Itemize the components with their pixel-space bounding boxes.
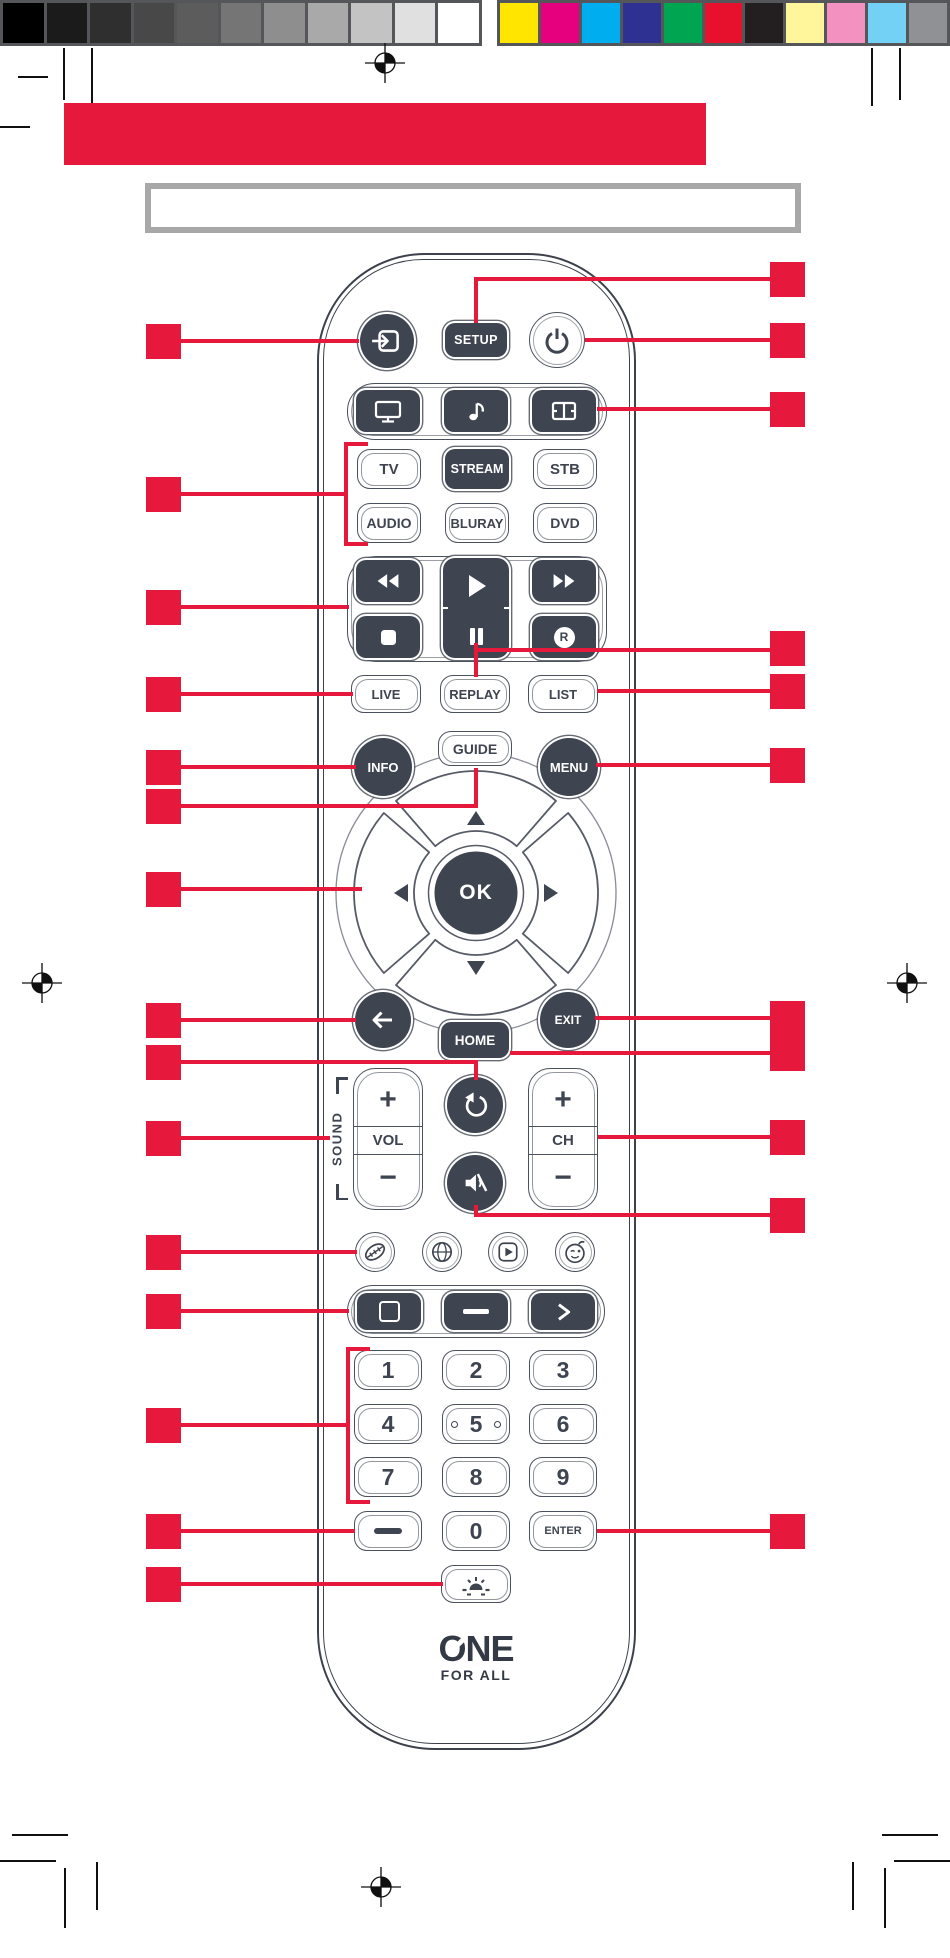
backlight-icon [459,1571,493,1597]
callout-line [181,1136,330,1140]
picture-format-button [357,1293,421,1330]
input-source-icon [370,324,404,358]
crop-mark [0,126,30,128]
calibration-swatch [500,3,538,43]
callout-devices [146,477,181,512]
channel-down: − [529,1155,597,1201]
sound-bracket [336,1198,348,1201]
callout-line [181,339,359,343]
digit-label: 4 [382,1411,395,1438]
callout-setup [770,262,805,297]
dash-function-button [444,1293,508,1330]
callout-list [770,674,805,709]
calibration-swatch [623,3,661,43]
calibration-swatch [827,3,865,43]
live-button: LIVE [351,675,421,713]
tactile-dot [451,1421,458,1428]
device-key-tv: TV [357,449,421,489]
callout-line [597,407,770,411]
device-key-stb: STB [533,449,597,489]
device-key-audio: AUDIO [357,503,421,543]
ch-label: CH [529,1126,597,1155]
calibration-swatch [221,3,262,43]
callout-backlight [146,1567,181,1602]
menu-label: MENU [550,760,588,775]
device-key-stream: STREAM [445,449,509,489]
calibration-swatch [745,3,783,43]
calibration-swatch [351,3,392,43]
callout-input [146,324,181,359]
sound-label: SOUND [328,1094,346,1184]
callout-power [770,323,805,358]
info-label: INFO [367,760,398,775]
device-key-label: TV [379,461,398,478]
calibration-swatch [47,3,88,43]
channel-up: + [529,1077,597,1123]
music-mode-button [444,390,508,432]
callout-back [146,1003,181,1038]
calibration-swatch [909,3,947,43]
music-mode-icon [460,395,492,427]
callout-line [181,765,356,769]
callout-pause [770,631,805,666]
calibration-bar-colors [497,0,950,46]
callout-line [474,768,478,808]
callout-exit [770,1001,805,1036]
crop-mark [96,1862,98,1910]
globe-icon [428,1238,456,1266]
calibration-swatch [705,3,743,43]
mute-button [447,1155,503,1211]
calibration-swatch [177,3,218,43]
callout-undo [146,1045,181,1080]
callout-bracket [346,1347,370,1351]
crop-mark [0,1860,56,1862]
vol-label: VOL [354,1126,422,1155]
crop-mark [91,48,93,106]
calibration-swatch [786,3,824,43]
callout-info [146,750,181,785]
mute-icon [460,1168,490,1198]
enter-button: ENTER [529,1511,597,1551]
ok-label: OK [459,881,493,905]
home-label: HOME [455,1033,496,1048]
plus-icon: + [554,1083,572,1117]
stop-button [356,616,420,658]
callout-guide [146,789,181,824]
calibration-swatch [868,3,906,43]
digit-label: 6 [557,1411,570,1438]
callout-keypad-dash [146,1514,181,1549]
video-app-button [488,1232,528,1272]
volume-up: + [354,1077,422,1123]
digit-0-button: 0 [442,1511,510,1551]
leaf-icon [360,1237,390,1267]
calibration-swatch [264,3,305,43]
calibration-bar-grayscale [0,0,482,46]
volume-rocker: + VOL − [353,1068,423,1210]
tactile-dot [494,1421,501,1428]
backlight-button [441,1565,511,1603]
logo-line1: ONE [396,1630,556,1668]
calibration-swatch [541,3,579,43]
registration-mark [22,963,62,1003]
callout-line [596,763,770,767]
menu-button: MENU [540,738,598,796]
minus-icon: − [554,1161,572,1195]
callout-line [597,689,770,693]
movie-mode-button [532,390,596,432]
digit-label: 8 [470,1464,483,1491]
device-key-label: STB [550,461,580,478]
callout-line [510,1051,770,1055]
crop-mark [882,1834,938,1836]
callout-bracket [344,442,348,546]
callout-menu [770,748,805,783]
stop-icon [381,630,396,645]
crop-mark [871,48,873,106]
device-key-label: DVD [550,515,580,531]
callout-line [474,1205,478,1217]
chevron-next-icon [550,1299,576,1325]
calibration-swatch [134,3,175,43]
callout-apps [146,1235,181,1270]
guide-button: GUIDE [438,731,512,766]
callout-function-row [146,1294,181,1329]
callout-movie-mode [770,392,805,427]
crop-mark [894,1860,950,1862]
callout-live [146,677,181,712]
callout-line [476,1213,770,1217]
kids-app-button [555,1232,595,1272]
keypad-dash-button [354,1511,422,1551]
dash-icon [463,1309,489,1314]
power-icon [541,324,573,356]
callout-line [181,1529,355,1533]
callout-mute [770,1198,805,1233]
digit-7-button: 7 [354,1457,422,1497]
play-icon [469,575,486,597]
calibration-swatch [582,3,620,43]
plus-icon: + [379,1083,397,1117]
digit-label: 7 [382,1464,395,1491]
picture-format-icon [379,1301,400,1322]
movie-mode-icon [547,395,581,427]
calibration-swatch [90,3,131,43]
tv-mode-icon [371,395,405,427]
replay-label: REPLAY [449,687,501,702]
callout-channel [770,1120,805,1155]
crop-mark [899,48,901,100]
back-button [355,992,411,1048]
crop-mark [18,76,48,78]
digit-4-button: 4 [354,1404,422,1444]
exit-label: EXIT [555,1013,582,1027]
digit-9-button: 9 [529,1457,597,1497]
record-label: R [560,630,569,644]
callout-bracket [344,542,368,546]
exit-button: EXIT [540,992,596,1048]
callout-enter [770,1514,805,1549]
back-arrow-icon [367,1004,399,1036]
callout-sound [146,1121,181,1156]
digit-label: 2 [470,1357,483,1384]
setup-button: SETUP [445,323,507,357]
callout-line [476,648,770,652]
callout-navigation [146,872,181,907]
callout-line [181,887,362,891]
digit-6-button: 6 [529,1404,597,1444]
callout-line [181,492,348,496]
rewind-button [356,560,420,602]
globe-app-button [422,1232,462,1272]
callout-line [181,804,478,808]
callout-line [474,277,478,323]
calibration-swatch [3,3,44,43]
callout-line [181,1018,356,1022]
list-label: LIST [549,687,577,702]
guide-label: GUIDE [453,741,497,757]
callout-line [476,277,770,281]
device-key-label: BLURAY [451,516,504,531]
digit-label: 5 [470,1411,483,1438]
red-banner [64,103,706,165]
callout-line [181,692,353,696]
title-box [145,183,801,233]
device-key-dvd: DVD [533,503,597,543]
crop-mark [64,1868,66,1928]
manual-page: SETUP TV STREAM STB AUDIO BLURAY DVD R L… [0,0,950,1958]
digit-1-button: 1 [354,1350,422,1390]
callout-line [181,1423,349,1427]
callout-bracket [344,442,368,446]
registration-mark [365,43,405,83]
callout-line [474,1060,478,1080]
digit-label: 0 [470,1518,483,1545]
pause-icon [478,628,483,645]
callout-line [181,1060,478,1064]
divider [443,607,448,609]
kids-face-icon [560,1237,590,1267]
power-button [529,312,585,368]
sound-bracket [336,1077,339,1094]
crop-mark [852,1862,854,1910]
calibration-swatch [395,3,436,43]
fast-forward-icon [549,568,579,594]
input-source-button [360,314,414,368]
callout-home [770,1036,805,1071]
ok-button: OK [446,879,506,907]
callout-line [585,338,770,342]
fast-forward-button [532,560,596,602]
device-key-label: STREAM [451,462,504,476]
callout-bracket [346,1347,350,1504]
tv-mode-button [356,390,420,432]
setup-label: SETUP [454,333,498,347]
volume-down: − [354,1155,422,1201]
undo-icon [460,1090,490,1120]
callout-line [181,605,349,609]
digit-label: 9 [557,1464,570,1491]
channel-rocker: + CH − [528,1068,598,1210]
enter-label: ENTER [544,1525,581,1537]
digit-2-button: 2 [442,1350,510,1390]
video-app-icon [494,1238,522,1266]
digit-3-button: 3 [529,1350,597,1390]
list-button: LIST [528,675,598,713]
leaf-app-button [355,1232,395,1272]
rewind-icon [373,568,403,594]
undo-button [447,1077,503,1133]
digit-5-button: 5 [442,1404,510,1444]
callout-line [181,1582,443,1586]
calibration-swatch [664,3,702,43]
callout-line [474,643,478,677]
registration-mark [887,963,927,1003]
minus-icon: − [379,1161,397,1195]
digit-label: 3 [557,1357,570,1384]
divider [504,607,509,609]
replay-button: REPLAY [440,675,510,713]
next-function-button [531,1293,595,1330]
callout-bracket [346,1500,370,1504]
callout-line [181,1250,357,1254]
digit-label: 1 [382,1357,395,1384]
info-button: INFO [354,738,412,796]
logo-line2: FOR ALL [396,1667,556,1683]
registration-mark [361,1867,401,1907]
callout-digits [146,1408,181,1443]
digit-8-button: 8 [442,1457,510,1497]
calibration-swatch [438,3,479,43]
calibration-swatch [308,3,349,43]
callout-line [181,1309,349,1313]
callout-transport [146,590,181,625]
device-key-label: AUDIO [366,515,411,531]
keypad-dash-icon [374,1528,402,1534]
home-button: HOME [441,1022,509,1058]
record-icon: R [554,627,575,648]
device-key-bluray: BLURAY [445,503,509,543]
callout-line [597,1529,770,1533]
callout-line [595,1016,770,1020]
crop-mark [884,1868,886,1928]
live-label: LIVE [372,687,401,702]
callout-line [598,1135,770,1139]
crop-mark [12,1834,68,1836]
crop-mark [63,48,65,100]
